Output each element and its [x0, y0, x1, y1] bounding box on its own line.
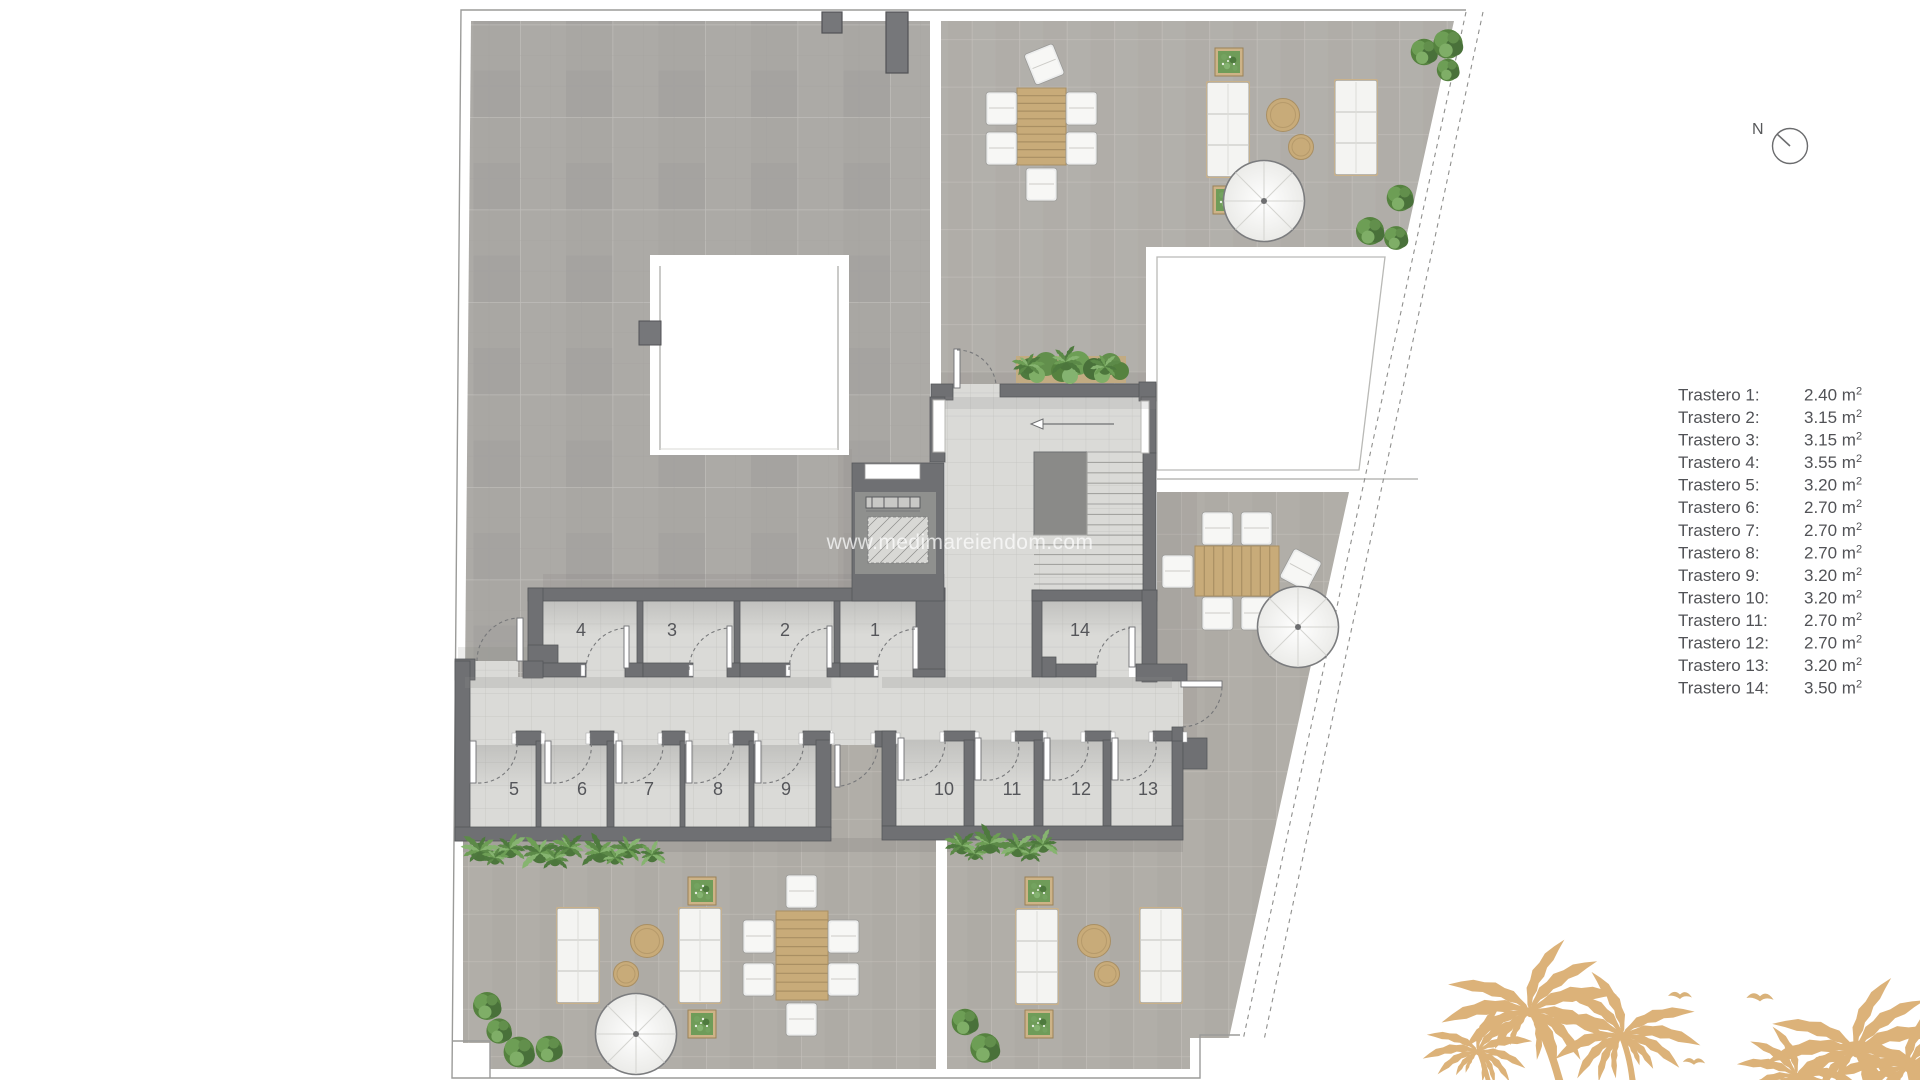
- svg-text:3.20 m2: 3.20 m2: [1804, 589, 1862, 608]
- svg-text:3.15 m2: 3.15 m2: [1804, 408, 1862, 427]
- svg-text:3.50 m2: 3.50 m2: [1804, 679, 1862, 698]
- svg-text:Trastero 11:: Trastero 11:: [1678, 611, 1768, 630]
- svg-text:14: 14: [1070, 620, 1090, 640]
- svg-text:Trastero 12:: Trastero 12:: [1678, 634, 1769, 653]
- svg-text:3.20 m2: 3.20 m2: [1804, 656, 1862, 675]
- svg-text:Trastero 2:: Trastero 2:: [1678, 408, 1760, 427]
- svg-text:10: 10: [934, 779, 954, 799]
- svg-text:Trastero 4:: Trastero 4:: [1678, 453, 1760, 472]
- svg-text:2.70 m2: 2.70 m2: [1804, 543, 1862, 562]
- svg-text:Trastero 13:: Trastero 13:: [1678, 656, 1769, 675]
- svg-text:Trastero 8:: Trastero 8:: [1678, 543, 1760, 562]
- svg-text:13: 13: [1138, 779, 1158, 799]
- svg-text:5: 5: [509, 779, 519, 799]
- svg-text:Trastero 9:: Trastero 9:: [1678, 566, 1760, 585]
- svg-text:Trastero 6:: Trastero 6:: [1678, 498, 1760, 517]
- svg-text:Trastero 10:: Trastero 10:: [1678, 589, 1769, 608]
- svg-text:2.70 m2: 2.70 m2: [1804, 611, 1862, 630]
- svg-text:2.70 m2: 2.70 m2: [1804, 521, 1862, 540]
- svg-text:www.medimareiendom.com: www.medimareiendom.com: [826, 531, 1094, 554]
- svg-text:N: N: [1752, 121, 1764, 138]
- svg-text:Trastero 1:: Trastero 1:: [1678, 386, 1760, 405]
- svg-text:2.40 m2: 2.40 m2: [1804, 386, 1862, 405]
- svg-text:2.70 m2: 2.70 m2: [1804, 498, 1862, 517]
- svg-text:12: 12: [1071, 779, 1091, 799]
- svg-text:4: 4: [576, 620, 586, 640]
- svg-text:3.15 m2: 3.15 m2: [1804, 431, 1862, 450]
- svg-text:Trastero 3:: Trastero 3:: [1678, 431, 1760, 450]
- svg-text:2: 2: [780, 620, 790, 640]
- svg-text:7: 7: [644, 779, 654, 799]
- svg-text:6: 6: [577, 779, 587, 799]
- svg-text:3.20 m2: 3.20 m2: [1804, 476, 1862, 495]
- svg-text:1: 1: [870, 620, 880, 640]
- svg-text:Trastero 14:: Trastero 14:: [1678, 679, 1769, 698]
- svg-text:3.55 m2: 3.55 m2: [1804, 453, 1862, 472]
- svg-text:Trastero 5:: Trastero 5:: [1678, 476, 1760, 495]
- svg-text:8: 8: [713, 779, 723, 799]
- svg-text:Trastero 7:: Trastero 7:: [1678, 521, 1760, 540]
- svg-text:9: 9: [781, 779, 791, 799]
- svg-text:3.20 m2: 3.20 m2: [1804, 566, 1862, 585]
- svg-text:2.70 m2: 2.70 m2: [1804, 634, 1862, 653]
- svg-text:11: 11: [1003, 779, 1022, 799]
- svg-text:3: 3: [667, 620, 677, 640]
